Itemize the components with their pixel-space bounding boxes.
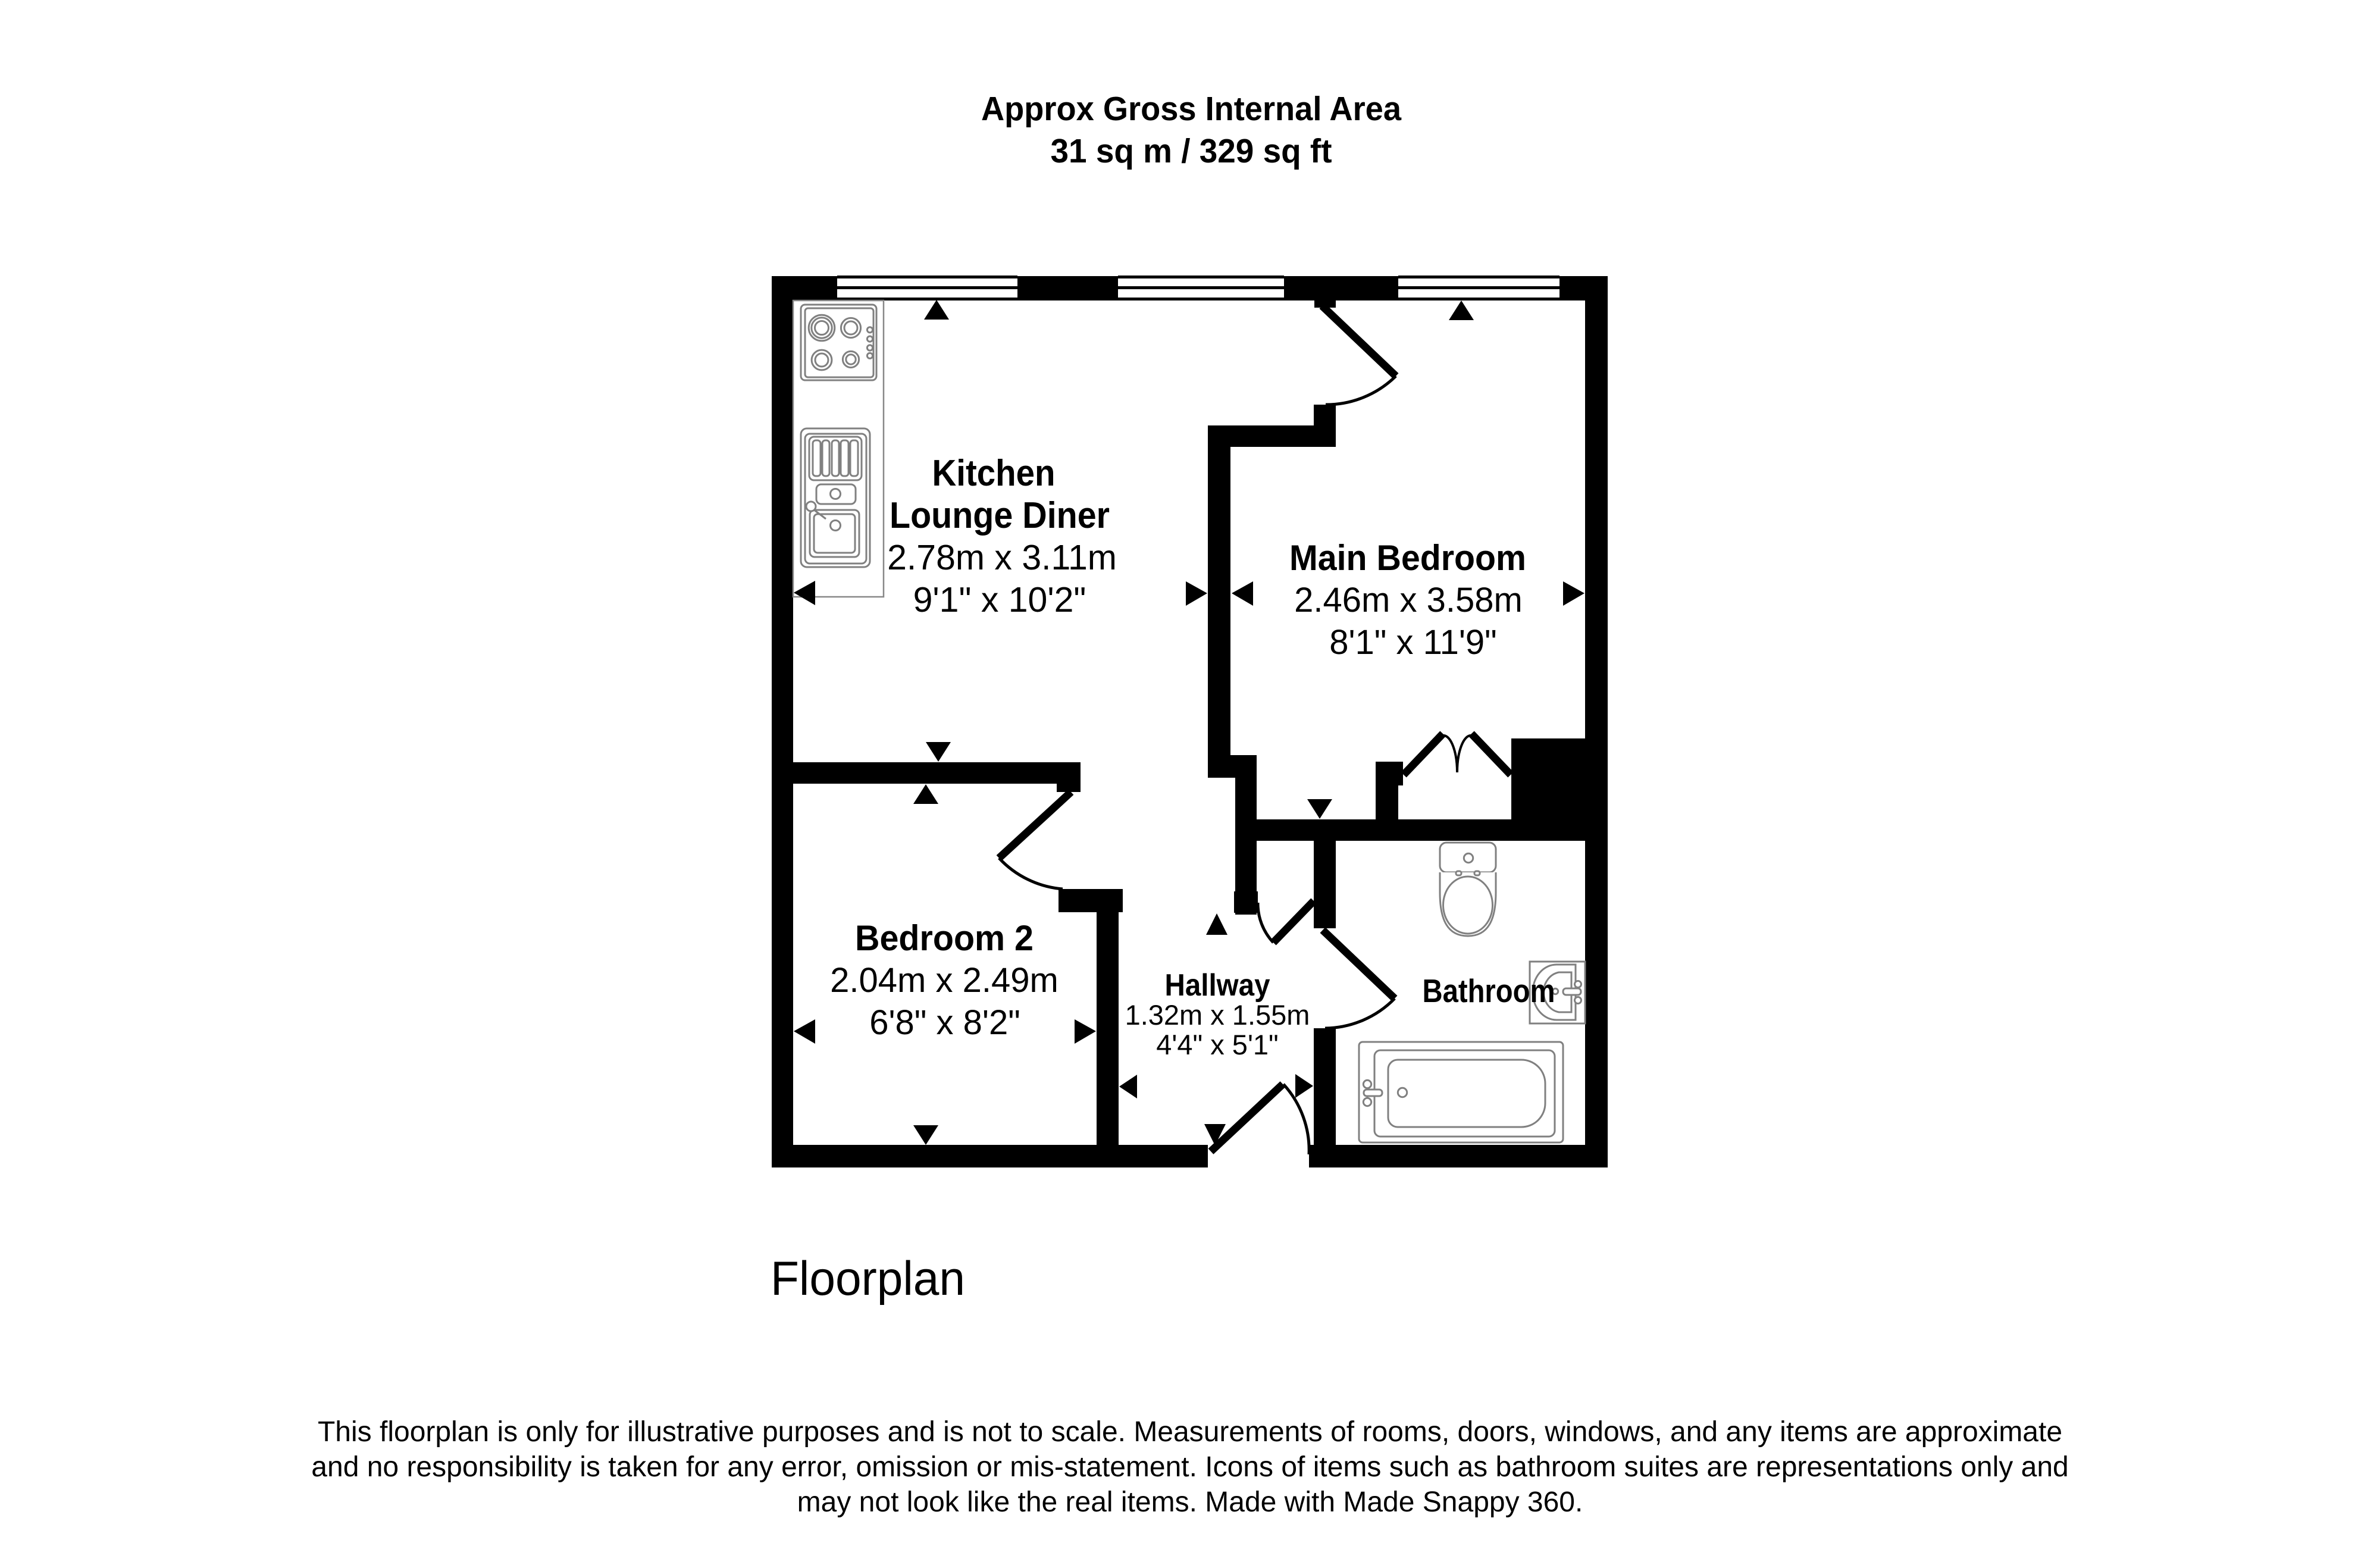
svg-text:Floorplan: Floorplan: [771, 1252, 965, 1306]
svg-text:Kitchen: Kitchen: [932, 453, 1056, 494]
svg-text:may not look like the real ite: may not look like the real items. Made w…: [797, 1486, 1583, 1518]
svg-text:Lounge Diner: Lounge Diner: [890, 495, 1110, 536]
svg-text:6'8" x 8'2": 6'8" x 8'2": [869, 1003, 1020, 1042]
svg-text:Hallway: Hallway: [1165, 968, 1270, 1003]
svg-text:Approx Gross Internal Area: Approx Gross Internal Area: [981, 90, 1402, 128]
svg-text:2.46m x 3.58m: 2.46m x 3.58m: [1294, 581, 1523, 619]
svg-text:Bedroom 2: Bedroom 2: [855, 918, 1034, 958]
svg-text:This floorplan is only for ill: This floorplan is only for illustrative …: [318, 1416, 2062, 1448]
svg-text:8'1" x 11'9": 8'1" x 11'9": [1329, 623, 1497, 662]
svg-text:31 sq m / 329 sq ft: 31 sq m / 329 sq ft: [1051, 132, 1332, 170]
svg-text:1.32m x 1.55m: 1.32m x 1.55m: [1125, 999, 1310, 1031]
svg-text:and no responsibility is taken: and no responsibility is taken for any e…: [311, 1451, 2068, 1483]
svg-text:9'1" x 10'2": 9'1" x 10'2": [913, 580, 1086, 619]
svg-text:2.04m x 2.49m: 2.04m x 2.49m: [830, 961, 1059, 1000]
svg-text:Main Bedroom: Main Bedroom: [1289, 538, 1526, 578]
svg-text:4'4" x 5'1": 4'4" x 5'1": [1156, 1029, 1279, 1060]
svg-text:Bathroom: Bathroom: [1423, 972, 1555, 1009]
svg-text:2.78m x 3.11m: 2.78m x 3.11m: [887, 538, 1117, 577]
